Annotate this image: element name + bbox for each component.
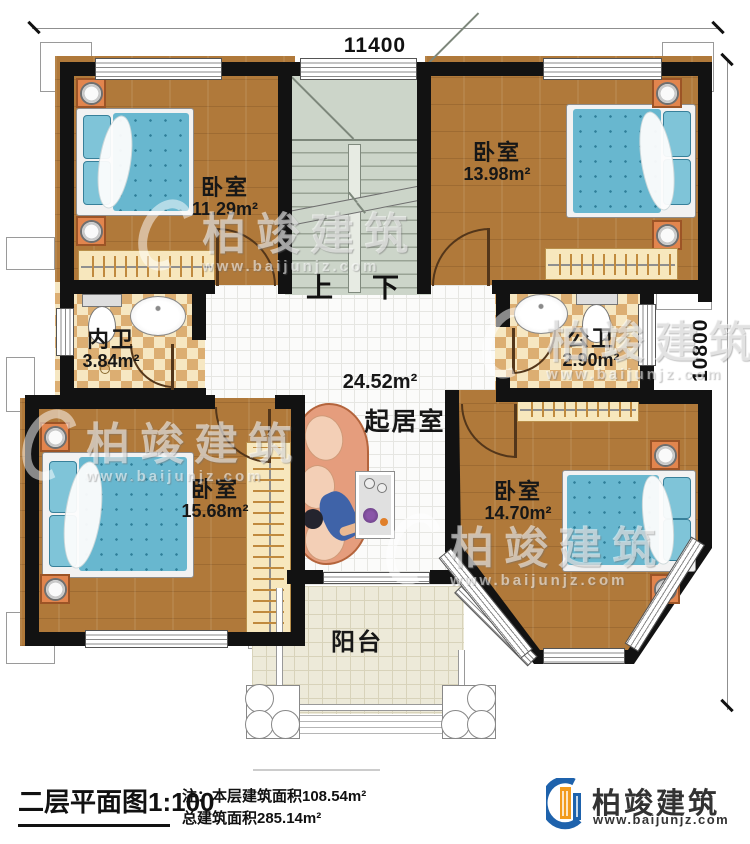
wall (698, 62, 712, 302)
brand-logo (546, 778, 586, 834)
room-area: 11.29m² (165, 200, 285, 220)
pillar (245, 710, 274, 739)
room-name: 卧室 (458, 480, 578, 504)
door-leaf (268, 409, 271, 463)
room-area: 13.98m² (437, 165, 557, 185)
wall (25, 395, 215, 409)
flower-vase (363, 508, 378, 523)
bed (562, 470, 696, 572)
stairwell (292, 76, 417, 295)
break-zigzag (356, 202, 366, 213)
footer-divider (253, 769, 380, 771)
room-label-living-name: 起居室 (347, 409, 463, 437)
door-leaf (514, 404, 517, 458)
window (300, 58, 417, 80)
room-label-bath-public: 公卫 2.90m² (541, 327, 641, 371)
wall (291, 395, 305, 646)
lamp-icon (44, 578, 67, 601)
stair-rail (348, 144, 361, 293)
room-name: 卧室 (165, 176, 285, 200)
wall (287, 570, 323, 584)
window (543, 58, 662, 80)
room-area: 2.90m² (541, 351, 641, 371)
hangers (522, 401, 634, 418)
stair-landing-line (291, 76, 354, 139)
plan-title-text: 二层平面图 (18, 787, 148, 817)
balcony-steps (296, 710, 446, 736)
dimension-line-top (32, 28, 720, 29)
wall (492, 280, 698, 294)
footer-note-2: 总建筑面积285.14m² (182, 807, 321, 828)
wardrobe (545, 248, 678, 280)
pillar (467, 710, 496, 739)
door-leaf (171, 344, 174, 390)
cup (364, 478, 375, 489)
wall (25, 632, 85, 646)
lamp-icon (656, 224, 679, 247)
hangers (550, 254, 673, 275)
stair-down-label: 下 (372, 266, 399, 305)
room-name: 起居室 (347, 409, 463, 437)
door-leaf (216, 228, 219, 286)
room-label-bedroom-tr: 卧室 13.98m² (437, 141, 557, 185)
nightstand (652, 78, 682, 108)
dimension-line-right (727, 60, 728, 710)
room-name: 公卫 (541, 327, 641, 351)
pillar (467, 684, 496, 713)
room-area: 24.52m² (330, 371, 430, 393)
ac-platform (6, 237, 55, 270)
bed (566, 104, 696, 218)
nightstand (76, 78, 106, 108)
wall (192, 288, 206, 340)
title-underline (18, 824, 170, 827)
wall (496, 388, 654, 402)
sliding-door-balcony (323, 572, 430, 584)
room-area: 3.84m² (61, 352, 161, 372)
wall (496, 280, 510, 327)
window (543, 648, 625, 664)
floor-plan-page: 11400 10800 上 下 (0, 0, 750, 844)
nightstand (652, 220, 682, 250)
lamp-icon (80, 82, 103, 105)
footer-note-1: 注：本层建筑面积108.54m² (182, 785, 366, 806)
lamp-icon (656, 82, 679, 105)
wall (417, 62, 431, 294)
nightstand (650, 440, 680, 470)
sofa-cushion (300, 411, 349, 465)
room-label-bedroom-br: 卧室 14.70m² (458, 480, 578, 524)
dimension-width-label: 11400 (325, 34, 425, 58)
nightstand (40, 574, 70, 604)
room-label-bedroom-bl: 卧室 15.68m² (155, 478, 275, 522)
wall (228, 632, 305, 646)
lamp-icon (80, 220, 103, 243)
lamp-icon (654, 444, 677, 467)
wall (25, 395, 39, 646)
pillar-cluster (442, 685, 496, 739)
lamp-icon (44, 426, 67, 449)
pillar (245, 684, 274, 713)
room-name: 阳台 (307, 630, 407, 656)
door-leaf (512, 328, 515, 374)
room-label-bath-inner: 内卫 3.84m² (61, 328, 161, 372)
cup (377, 483, 387, 493)
door-leaf (487, 228, 490, 286)
dimension-height-label: 10800 (689, 330, 715, 382)
window (95, 58, 222, 80)
room-label-balcony: 阳台 (307, 630, 407, 656)
pillar (441, 710, 470, 739)
room-label-bedroom-tl: 卧室 11.29m² (165, 176, 285, 220)
stair-up-label: 上 (306, 266, 333, 305)
flower (380, 518, 388, 526)
brand-site: www.baijunjz.com (593, 812, 729, 827)
nightstand (76, 216, 106, 246)
window (85, 630, 228, 648)
room-label-living-area: 24.52m² (330, 371, 430, 393)
nightstand (40, 422, 70, 452)
room-area: 15.68m² (155, 502, 275, 522)
room-name: 卧室 (155, 478, 275, 502)
brand-logo-icon (546, 778, 586, 834)
pillar-cluster (246, 685, 300, 739)
room-name: 内卫 (61, 328, 161, 352)
person-head (303, 509, 323, 529)
room-name: 卧室 (437, 141, 557, 165)
pillar (271, 710, 300, 739)
room-area: 14.70m² (458, 504, 578, 524)
wardrobe (246, 442, 291, 638)
logo-building-orange (560, 787, 571, 819)
wardrobe (78, 250, 215, 282)
coffee-table (355, 471, 395, 539)
hangers (83, 256, 210, 277)
